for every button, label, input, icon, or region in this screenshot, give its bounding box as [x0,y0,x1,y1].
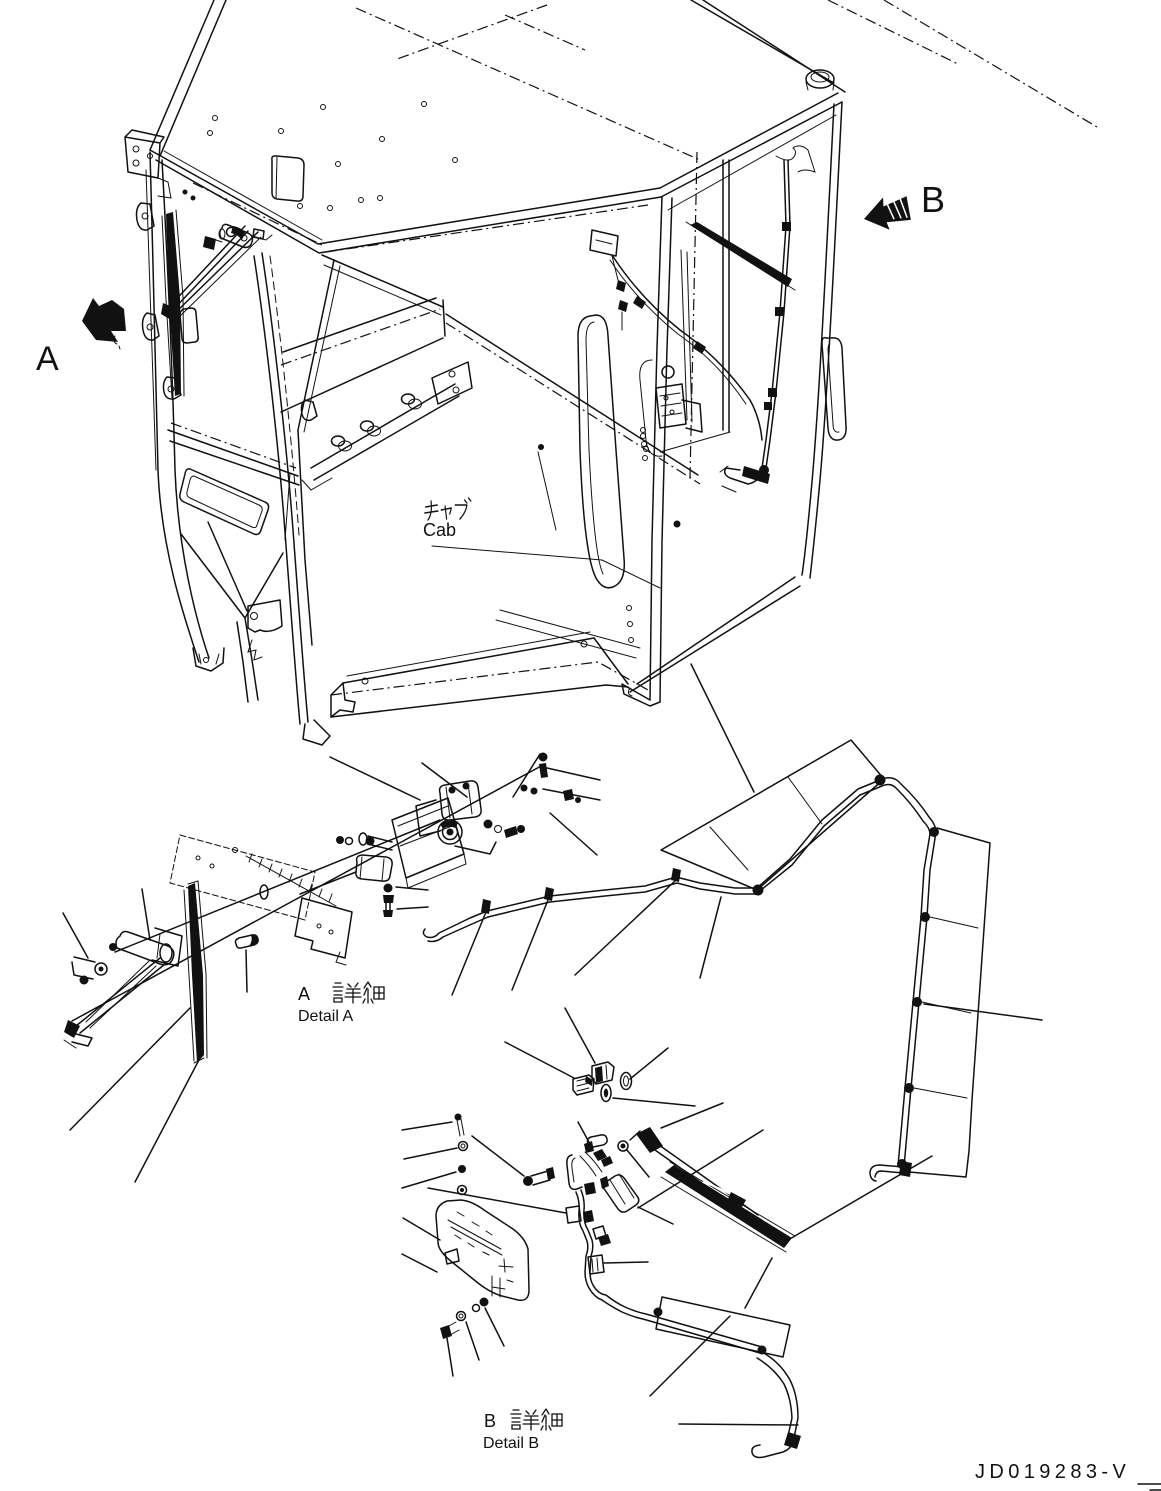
svg-text:Detail A: Detail A [298,1008,353,1025]
svg-text:A: A [36,340,59,378]
svg-text:Cab: Cab [423,520,456,540]
svg-text:B: B [484,1411,496,1431]
svg-text:A: A [298,984,310,1004]
svg-text:Detail B: Detail B [483,1435,539,1452]
svg-text:B: B [921,179,945,220]
svg-text:JD019283-V: JD019283-V [975,1461,1130,1483]
